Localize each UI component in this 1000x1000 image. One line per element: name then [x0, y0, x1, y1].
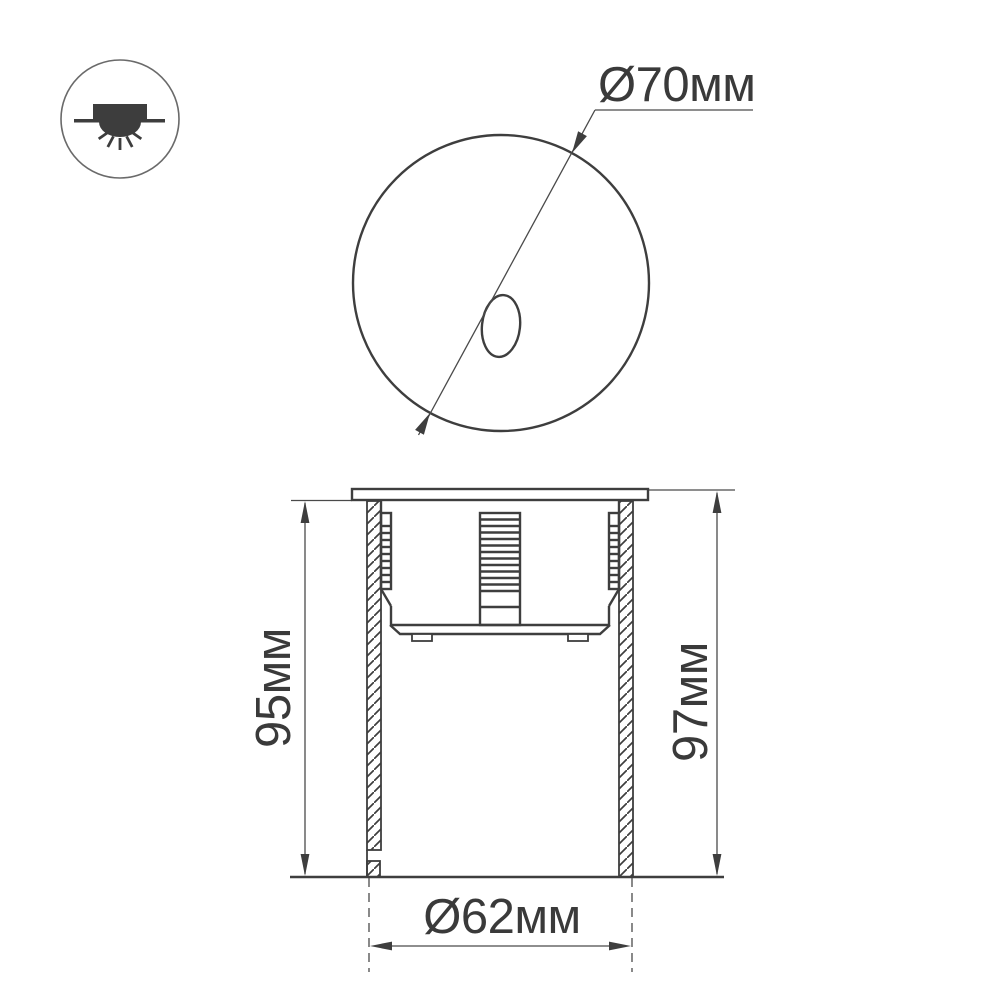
arrowhead	[370, 942, 392, 951]
body-bottom	[390, 625, 610, 641]
rib-ladder-left	[381, 513, 391, 589]
lamp-body-icon	[93, 104, 147, 119]
flange-plate	[352, 489, 648, 500]
arrowhead	[713, 854, 722, 876]
diameter-leader-line	[419, 110, 596, 435]
lens-opening-ellipse	[479, 293, 523, 359]
tube-wall-left	[367, 501, 381, 850]
arrowhead	[301, 854, 310, 876]
tube-wall-left-foot	[367, 861, 380, 877]
tube-wall-right	[619, 501, 633, 877]
arrowhead	[609, 942, 631, 951]
cutout-diameter-label: Ø62мм	[423, 890, 581, 944]
rib-ladder-right	[609, 513, 619, 589]
arrowhead	[415, 413, 430, 435]
heatsink-column	[480, 513, 520, 625]
drawing-svg: Ø70мм	[0, 0, 1000, 1000]
arrowhead	[713, 491, 722, 513]
fixture-body	[381, 501, 619, 641]
arrowhead	[301, 501, 310, 523]
front-diameter-label: Ø70мм	[598, 58, 756, 112]
diameter-dimension: Ø70мм	[415, 58, 755, 435]
depth-left-label: 95мм	[247, 628, 301, 748]
cutout-dimension: Ø62мм	[370, 890, 631, 950]
front-view: Ø70мм	[353, 58, 756, 435]
arrowhead	[572, 131, 587, 153]
depth-dimension-right: 97мм	[664, 491, 721, 876]
legend-icon	[61, 60, 179, 178]
depth-dimension-left: 95мм	[247, 501, 309, 876]
technical-drawing-page: Ø70мм	[0, 0, 1000, 1000]
depth-right-label: 97мм	[664, 642, 718, 762]
